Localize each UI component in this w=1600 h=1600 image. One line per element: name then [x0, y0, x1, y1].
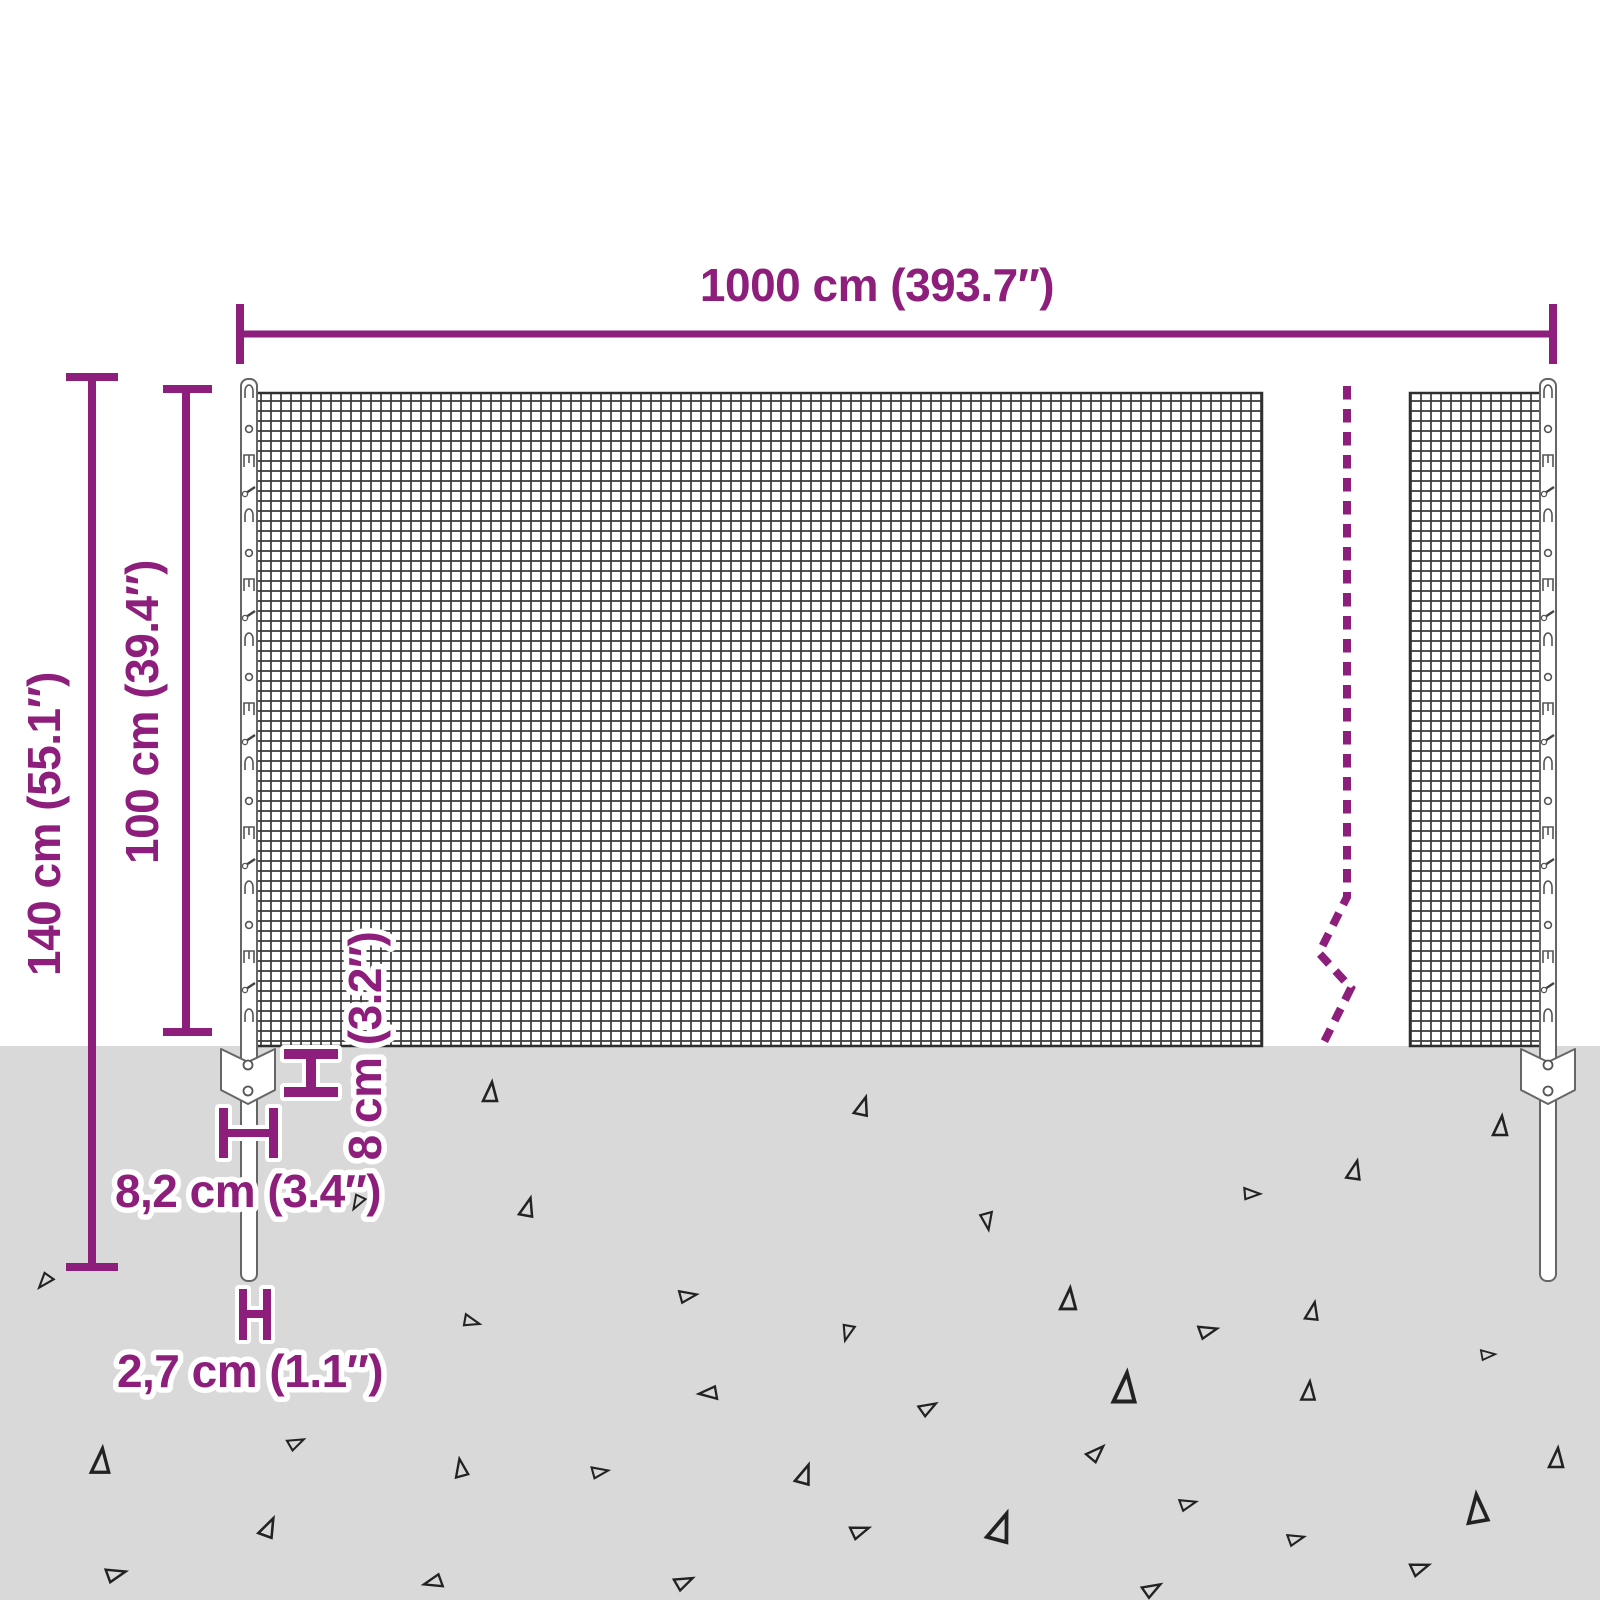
mesh-panel-main — [248, 393, 1262, 1046]
diagram-canvas: 1000 cm (393.7″) 140 cm (55.1″) 100 cm (… — [0, 0, 1600, 1600]
bracket-hole — [244, 1061, 253, 1070]
dim-mesh-height-line — [163, 389, 212, 1032]
break-line — [1319, 386, 1351, 1046]
label-total-width: 1000 cm (393.7″) — [700, 259, 1054, 311]
label-bracket-width: 8,2 cm (3.4″) — [115, 1165, 381, 1217]
bracket-hole — [1544, 1061, 1553, 1070]
fence-dimension-diagram: 1000 cm (393.7″) 140 cm (55.1″) 100 cm (… — [0, 0, 1600, 1600]
label-anchor-offset: 8 cm (3.2″) — [339, 932, 391, 1161]
label-mesh-height: 100 cm (39.4″) — [116, 560, 168, 864]
dim-width-line — [237, 304, 1556, 364]
label-post-diameter: 2,7 cm (1.1″) — [117, 1345, 383, 1397]
bracket-hole — [244, 1087, 253, 1096]
mesh-panel-right — [1410, 393, 1547, 1046]
label-total-height: 140 cm (55.1″) — [18, 672, 70, 976]
bracket-hole — [1544, 1087, 1553, 1096]
break-line-dashes — [1319, 386, 1351, 1046]
